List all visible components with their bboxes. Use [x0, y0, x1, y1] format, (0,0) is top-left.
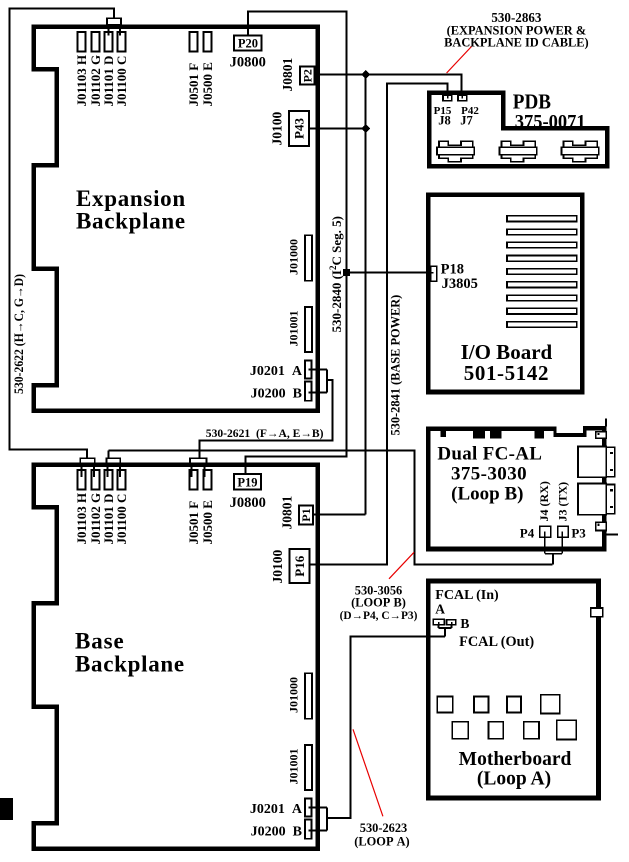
svg-text:530-2622 (H→C, G→D): 530-2622 (H→C, G→D): [12, 274, 26, 394]
svg-text:J01001: J01001: [286, 311, 300, 347]
svg-text:J0501 F: J0501 F: [186, 63, 201, 107]
svg-text:J01100 C: J01100 C: [114, 494, 129, 545]
svg-text:J0201 A: J0201 A: [250, 364, 303, 379]
svg-text:530-2840 (I2C Seg. 5): 530-2840 (I2C Seg. 5): [328, 216, 344, 332]
svg-text:J0500 E: J0500 E: [200, 62, 215, 106]
svg-text:J0100: J0100: [270, 112, 285, 146]
svg-text:J0200 B: J0200 B: [251, 824, 302, 839]
svg-text:J01103 H: J01103 H: [74, 55, 89, 107]
svg-text:P2: P2: [301, 69, 315, 82]
svg-text:Base: Base: [75, 629, 125, 654]
svg-text:BACKPLANE ID CABLE): BACKPLANE ID CABLE): [444, 36, 589, 50]
svg-text:J0501 F: J0501 F: [186, 501, 201, 545]
svg-text:PDB: PDB: [513, 90, 551, 114]
svg-text:P20: P20: [238, 37, 258, 51]
svg-text:J7: J7: [460, 114, 473, 128]
svg-text:FCAL (Out): FCAL (Out): [459, 634, 534, 650]
svg-text:375-3030: 375-3030: [451, 463, 527, 484]
svg-text:J8: J8: [438, 114, 451, 128]
svg-text:(Loop B): (Loop B): [451, 484, 523, 505]
svg-text:J0800: J0800: [230, 54, 266, 70]
svg-text:(LOOP B): (LOOP B): [351, 595, 406, 609]
svg-text:375-0071: 375-0071: [515, 111, 586, 133]
svg-text:J0200 B: J0200 B: [251, 386, 302, 401]
svg-text:P1: P1: [299, 508, 313, 521]
svg-text:A: A: [435, 601, 445, 616]
svg-text:(LOOP A): (LOOP A): [354, 835, 409, 849]
svg-text:530-2841 (BASE POWER): 530-2841 (BASE POWER): [389, 295, 403, 436]
svg-text:J0100: J0100: [270, 550, 285, 584]
svg-text:J0500 E: J0500 E: [200, 500, 215, 544]
svg-text:J01100 C: J01100 C: [114, 56, 129, 107]
svg-text:J3 (TX): J3 (TX): [556, 482, 570, 522]
svg-text:530-2623: 530-2623: [360, 821, 408, 835]
svg-text:530-2621 (F→A, E→B): 530-2621 (F→A, E→B): [206, 427, 324, 440]
svg-text:P4: P4: [520, 526, 535, 541]
svg-text:P19: P19: [237, 475, 257, 489]
svg-text:Backplane: Backplane: [75, 651, 185, 676]
svg-text:J3805: J3805: [442, 276, 478, 292]
svg-text:P16: P16: [292, 555, 307, 576]
svg-text:J01000: J01000: [286, 239, 300, 275]
svg-text:P3: P3: [571, 526, 586, 541]
svg-text:J0201 A: J0201 A: [250, 802, 303, 817]
svg-text:(D→P4, C→P3): (D→P4, C→P3): [340, 610, 418, 622]
svg-text:P43: P43: [291, 118, 306, 139]
svg-text:J4 (RX): J4 (RX): [537, 481, 551, 521]
svg-text:Backplane: Backplane: [76, 209, 186, 234]
svg-text:J01000: J01000: [286, 677, 300, 713]
svg-text:J0800: J0800: [230, 495, 266, 511]
svg-text:J01103 H: J01103 H: [74, 493, 89, 545]
svg-text:Expansion: Expansion: [76, 186, 186, 211]
svg-text:J0801: J0801: [280, 58, 295, 92]
svg-text:(Loop A): (Loop A): [477, 769, 551, 790]
svg-text:501-5142: 501-5142: [464, 361, 549, 385]
svg-text:Motherboard: Motherboard: [459, 749, 572, 770]
svg-text:J01001: J01001: [286, 749, 300, 785]
svg-text:B: B: [460, 616, 469, 631]
svg-text:Dual FC-AL: Dual FC-AL: [437, 443, 542, 464]
svg-text:J0801: J0801: [280, 496, 295, 530]
